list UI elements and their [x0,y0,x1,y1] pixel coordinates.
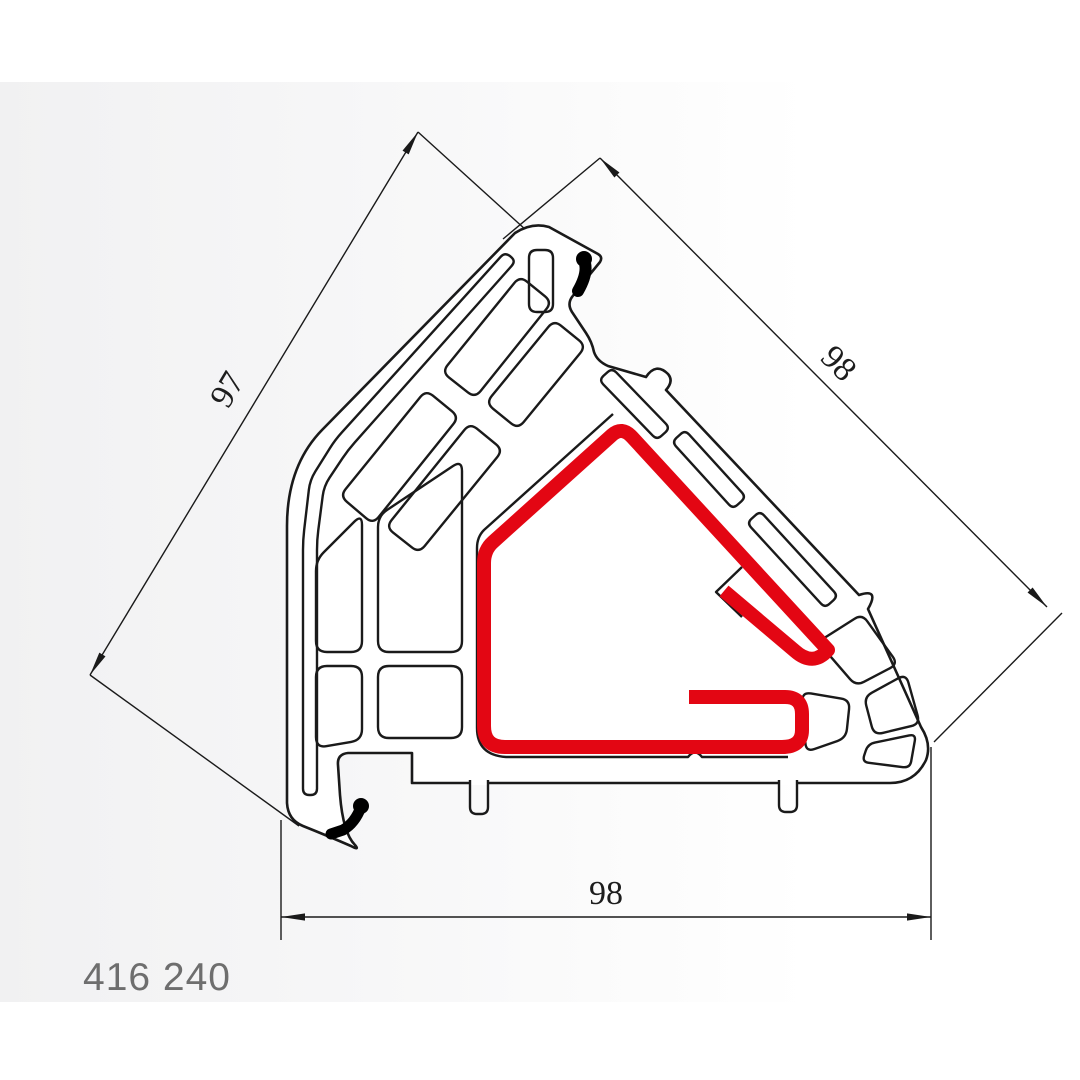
bottom-feet [469,780,798,814]
extension-line-97-bottom [90,675,299,826]
profile-technical-drawing: 97 98 98 [0,0,1080,1080]
foot-left [470,780,488,814]
extension-line-98tr-bottom [934,613,1062,742]
dimension-label-98-bottom: 98 [589,875,623,912]
extension-line-98tr-top [503,158,600,239]
part-number-label: 416 240 [83,956,231,1000]
profile-outline [287,225,928,848]
dimension-label-98-top-right: 98 [813,339,863,389]
dimension-label-97: 97 [203,366,252,414]
